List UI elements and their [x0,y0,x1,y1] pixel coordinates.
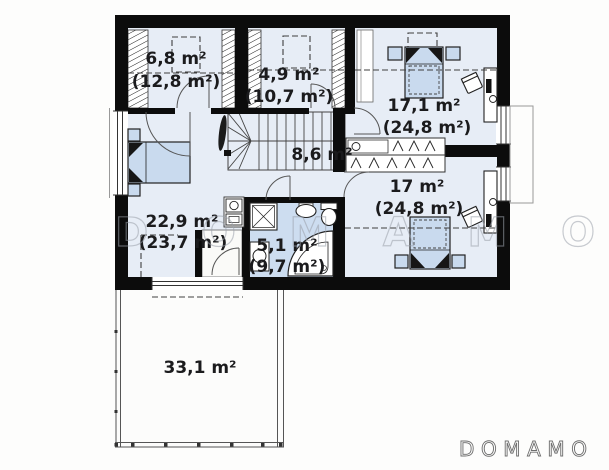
room171-area-label: 17,1 m² [387,96,460,116]
shower-icon [250,203,277,230]
terrace-area-label: 33,1 m² [163,358,236,378]
stair-newel-post [224,150,231,156]
room68-total-label: (12,8 m²) [132,72,221,92]
closet-room171 [357,30,373,102]
window-right-lower [496,167,511,201]
desk-icon-room171 [484,68,497,122]
wardrobe-icon [346,138,445,172]
floor-plan: 6,8 m² (12,8 m²) 4,9 m² (10,7 m²) 17,1 m… [0,0,609,470]
room49-area-label: 4,9 m² [258,65,319,85]
terrace-door [152,277,243,290]
floor-plan-page: 6,8 m² (12,8 m²) 4,9 m² (10,7 m²) 17,1 m… [0,0,609,470]
window-right-upper [496,106,511,144]
room68-area-label: 6,8 m² [145,49,206,69]
room171-total-label: (24,8 m²) [383,118,472,138]
bathroom-total-label: (9,7 m²) [249,257,326,277]
room17-area-label: 17 m² [390,177,445,197]
room49-total-label: (10,7 m²) [245,87,334,107]
hall-area-label: 8,6 m² [291,145,352,165]
